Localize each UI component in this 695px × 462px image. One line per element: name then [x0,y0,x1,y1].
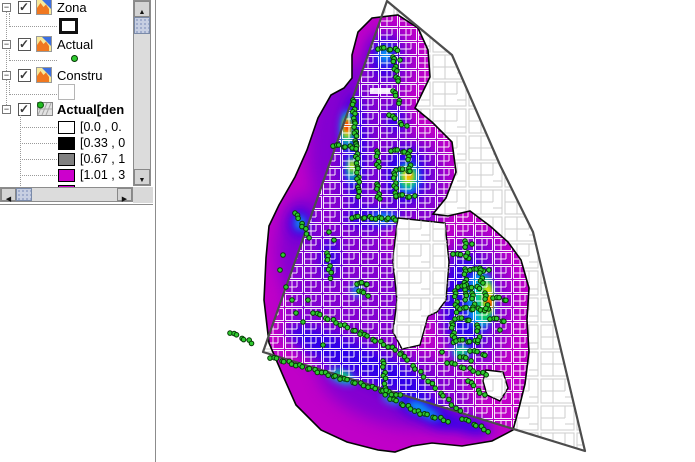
vector-polygon-icon [36,0,52,15]
layer-row-actual[interactable]: −✓Actual [0,38,133,54]
checkmark-icon: ✓ [19,37,29,51]
layer-checkbox-constru[interactable]: ✓ [18,69,31,82]
layer-label-zona[interactable]: Zona [57,0,87,15]
class-label: [0.0 , 0. [80,120,122,134]
scroll-down-button[interactable]: ▼ [134,169,150,185]
constru-symbol-swatch [58,84,75,100]
arrow-up-icon: ▲ [139,9,146,16]
layer-label-actual-den[interactable]: Actual[den [57,102,124,117]
zona-symbol-swatch [59,18,78,34]
class-label: [0.67 , 1 [80,152,125,166]
class-swatch [58,169,75,182]
checkmark-icon: ✓ [19,68,29,82]
checkmark-icon: ✓ [19,102,29,116]
vertical-scroll-thumb[interactable] [134,17,150,34]
expand-toggle-constru[interactable]: − [2,71,11,80]
layer-tree-content: −✓Zona−✓Actual−✓Constru−✓Actual[den[0.0 … [0,0,133,187]
class-row-1[interactable]: [0.33 , 0 [0,136,133,152]
expand-toggle-zona[interactable]: − [2,3,11,12]
layer-checkbox-actual[interactable]: ✓ [18,38,31,51]
class-row-3[interactable]: [1.01 , 3 [0,168,133,184]
vertical-scrollbar[interactable]: ▲ ▼ [133,0,151,186]
expand-toggle-actual[interactable]: − [2,40,11,49]
class-row-0[interactable]: [0.0 , 0. [0,120,133,136]
arrow-right-icon: ▶ [122,196,127,203]
scroll-up-button[interactable]: ▲ [134,1,150,17]
class-swatch [58,153,75,166]
layer-checkbox-zona[interactable]: ✓ [18,1,31,14]
panel-map-divider [155,0,156,462]
scrollbar-corner [133,187,153,203]
vector-polygon-icon [36,36,52,52]
arrow-down-icon: ▼ [139,177,146,184]
class-swatch [58,121,75,134]
horizontal-scroll-thumb[interactable] [16,188,32,201]
layer-tree-panel: −✓Zona−✓Actual−✓Constru−✓Actual[den[0.0 … [0,0,153,206]
layer-label-constru[interactable]: Constru [57,68,103,83]
arrow-left-icon: ◀ [6,196,11,203]
scroll-left-button[interactable]: ◀ [1,188,16,201]
scroll-right-button[interactable]: ▶ [117,188,132,201]
class-row-2[interactable]: [0.67 , 1 [0,152,133,168]
class-swatch [58,137,75,150]
raster-grid-icon [36,101,52,117]
layer-row-zona[interactable]: −✓Zona [0,1,133,17]
layer-label-actual[interactable]: Actual [57,37,93,52]
actual-symbol-dot [71,55,78,62]
class-label: [1.01 , 3 [80,168,125,182]
panel-bottom-border [0,204,153,205]
expand-toggle-actual-den[interactable]: − [2,105,11,114]
vector-polygon-icon [36,67,52,83]
horizontal-scrollbar[interactable]: ◀ ▶ [0,187,133,202]
layer-row-constru[interactable]: −✓Constru [0,69,133,85]
class-label: [0.33 , 0 [80,136,125,150]
tree-trunk-line [6,11,7,111]
checkmark-icon: ✓ [19,0,29,14]
